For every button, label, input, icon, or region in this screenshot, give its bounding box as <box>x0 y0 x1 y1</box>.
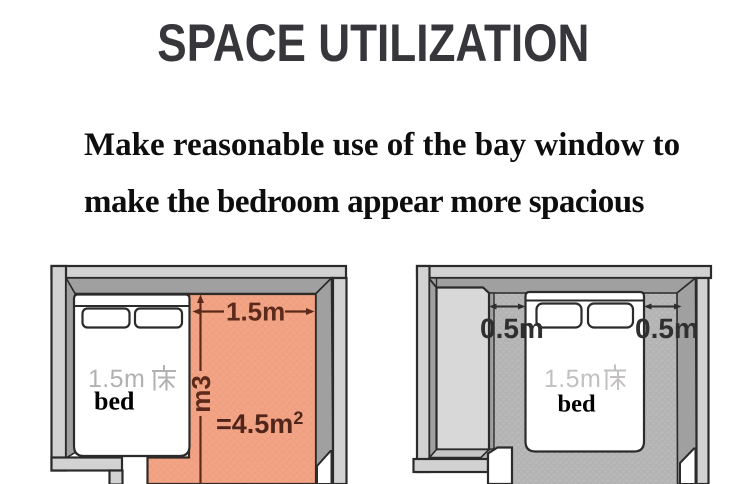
svg-text:0.5m: 0.5m <box>635 313 699 344</box>
svg-text:bed: bed <box>558 391 597 418</box>
svg-text:1.5m: 1.5m <box>226 297 285 327</box>
svg-text:0.5m: 0.5m <box>480 313 544 344</box>
svg-text:1.5m: 1.5m <box>544 365 601 393</box>
svg-text:bed: bed <box>94 387 135 416</box>
svg-text:m3: m3 <box>186 375 216 413</box>
svg-text:=4.5m2: =4.5m2 <box>216 408 303 439</box>
